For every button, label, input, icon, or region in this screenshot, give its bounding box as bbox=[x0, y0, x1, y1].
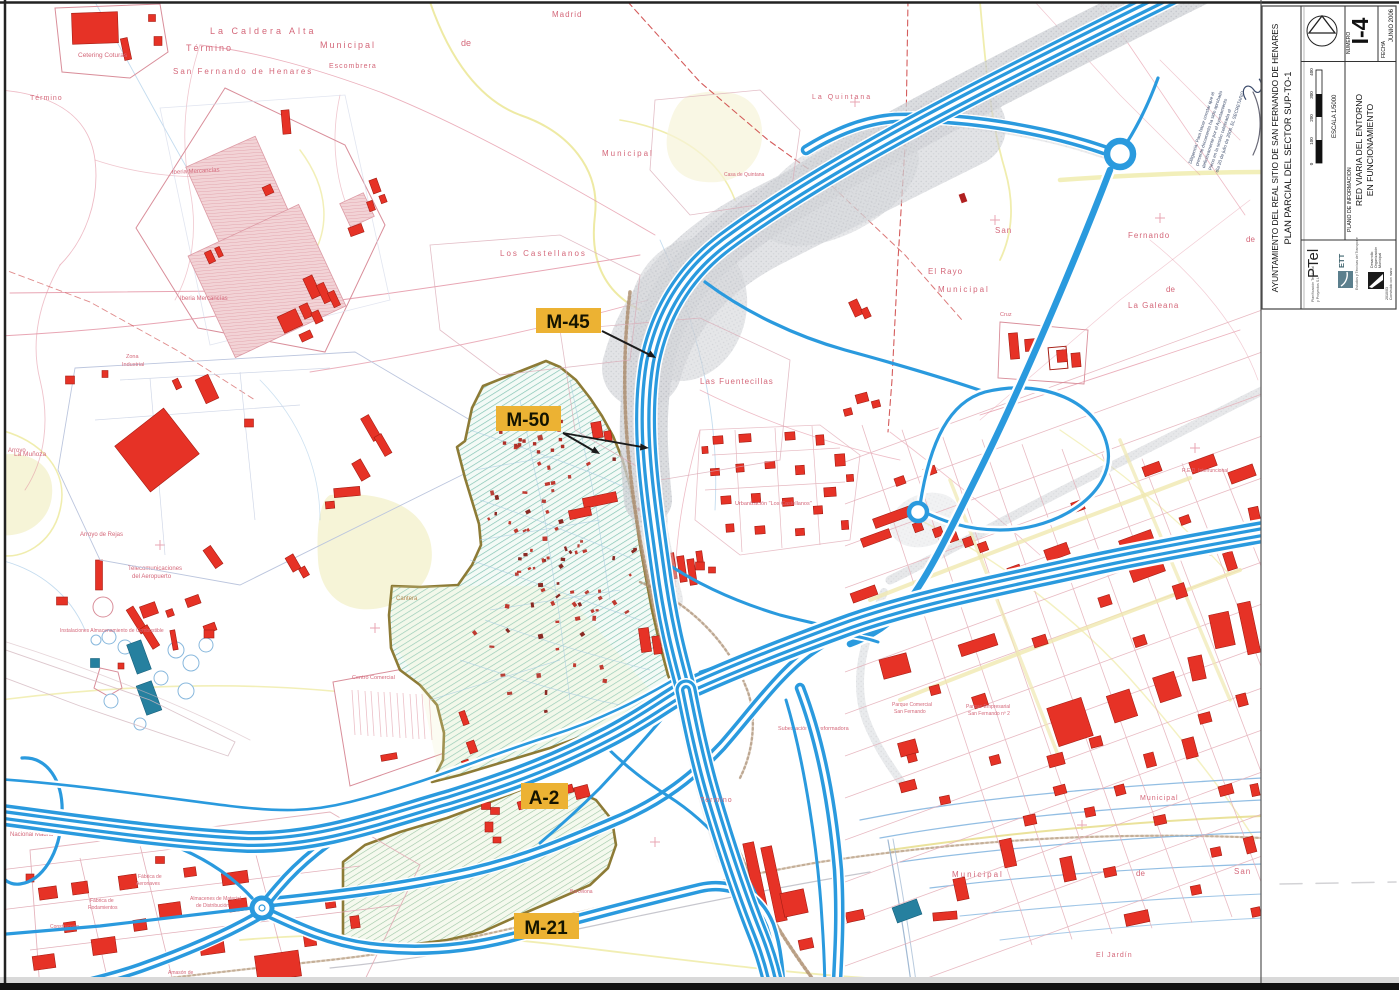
svg-text:Construido con mano: Construido con mano bbox=[1389, 268, 1393, 300]
svg-text:Arroyo de Rejas: Arroyo de Rejas bbox=[80, 532, 123, 538]
svg-text:Término: Término bbox=[30, 95, 63, 102]
svg-text:I-4: I-4 bbox=[1347, 17, 1373, 44]
svg-text:de: de bbox=[1136, 869, 1145, 878]
svg-text:Municipal: Municipal bbox=[320, 40, 376, 50]
svg-text:Zona: Zona bbox=[126, 354, 139, 360]
svg-text:M-50: M-50 bbox=[506, 410, 549, 431]
svg-text:La Caldera Alta: La Caldera Alta bbox=[210, 26, 317, 36]
svg-text:Planificación Territorial: Planificación Territorial bbox=[1311, 266, 1315, 302]
svg-text:ESCALA 1/5000: ESCALA 1/5000 bbox=[1332, 94, 1338, 138]
svg-text:San: San bbox=[995, 226, 1012, 235]
svg-text:400: 400 bbox=[1309, 68, 1314, 76]
svg-text:de: de bbox=[1246, 235, 1255, 244]
svg-text:FECHA: FECHA bbox=[1381, 40, 1387, 58]
svg-text:Parque Comercial: Parque Comercial bbox=[892, 702, 932, 708]
svg-text:Instalaciones Almacenamiento d: Instalaciones Almacenamiento de Combusti… bbox=[60, 628, 164, 634]
svg-text:Municipal: Municipal bbox=[1140, 795, 1179, 802]
svg-text:AYUNTAMIENTO DEL REAL SITIO DE: AYUNTAMIENTO DEL REAL SITIO DE SAN FERNA… bbox=[1270, 23, 1280, 292]
svg-text:R.E.D. Interfuncional: R.E.D. Interfuncional bbox=[1182, 468, 1228, 474]
svg-text:San Fernando de Henar: San Fernando de Henares bbox=[173, 67, 313, 76]
svg-text:100: 100 bbox=[1309, 137, 1314, 145]
svg-text:300: 300 bbox=[1309, 91, 1314, 99]
svg-text:Urbanización "Los Castellanos": Urbanización "Los Castellanos" bbox=[735, 501, 812, 507]
svg-text:El Jardín: El Jardín bbox=[1096, 952, 1133, 959]
svg-text:ETT: ETT bbox=[1337, 253, 1346, 268]
svg-text:Industrial: Industrial bbox=[122, 362, 144, 368]
svg-text:M-21: M-21 bbox=[524, 918, 568, 939]
svg-text:Barcelona: Barcelona bbox=[570, 889, 593, 895]
svg-text:Cetering Coturas: Cetering Coturas bbox=[78, 52, 128, 59]
svg-text:La Quintana: La Quintana bbox=[812, 94, 872, 101]
svg-text:del Aeropuerto: del Aeropuerto bbox=[132, 574, 172, 580]
svg-text:Fábrica de: Fábrica de bbox=[90, 898, 114, 904]
svg-text:de: de bbox=[1166, 285, 1175, 294]
svg-text:Las Fuentecillas: Las Fuentecillas bbox=[700, 377, 774, 386]
svg-text:San Fernando: San Fernando bbox=[894, 709, 926, 715]
svg-text:Estudios y Técnicas del Transp: Estudios y Técnicas del Transporte bbox=[1355, 237, 1359, 290]
svg-text:Municipal: Municipal bbox=[602, 149, 654, 158]
svg-text:Fernando: Fernando bbox=[1128, 231, 1170, 240]
svg-text:M-45: M-45 bbox=[546, 312, 590, 333]
svg-text:Rodamientos: Rodamientos bbox=[88, 905, 118, 911]
svg-text:Municipal: Municipal bbox=[938, 285, 990, 294]
svg-text:PLANO DE INFORMACION: PLANO DE INFORMACION bbox=[1347, 167, 1353, 232]
svg-text:El Rayo: El Rayo bbox=[928, 267, 963, 276]
svg-text:Municipal: Municipal bbox=[952, 870, 1004, 879]
svg-text:PLAN PARCIAL DEL SECTOR SUP-TO: PLAN PARCIAL DEL SECTOR SUP-TO-1 bbox=[1283, 72, 1293, 245]
svg-text:Parque Empresarial: Parque Empresarial bbox=[966, 704, 1010, 710]
svg-text:Municipal: Municipal bbox=[1378, 253, 1382, 268]
svg-text:A-2: A-2 bbox=[529, 788, 560, 809]
svg-text:Fábrica de: Fábrica de bbox=[138, 874, 162, 880]
svg-text:San: San bbox=[1234, 867, 1251, 876]
svg-text:Escombrera: Escombrera bbox=[329, 63, 377, 70]
svg-text:Término: Término bbox=[700, 797, 733, 804]
svg-text:y Proyectos S.L.: y Proyectos S.L. bbox=[1316, 276, 1320, 302]
svg-text:San Fernando nº 2: San Fernando nº 2 bbox=[968, 711, 1010, 717]
svg-text:Iberia Mercancías: Iberia Mercancías bbox=[180, 296, 228, 302]
svg-text:de: de bbox=[461, 38, 471, 48]
svg-text:EN FUNCIONAMIENTO: EN FUNCIONAMIENTO bbox=[1365, 103, 1375, 196]
svg-text:JUNIO 2006: JUNIO 2006 bbox=[1389, 8, 1395, 42]
svg-text:Arroyo: Arroyo bbox=[8, 448, 26, 454]
svg-text:Amasón de: Amasón de bbox=[168, 970, 194, 976]
svg-text:Centro Comercial: Centro Comercial bbox=[352, 675, 395, 681]
svg-text:Término: Término bbox=[186, 43, 233, 53]
svg-text:Madrid: Madrid bbox=[552, 10, 582, 19]
svg-text:200: 200 bbox=[1309, 114, 1314, 122]
svg-text:RED VIARIA DEL ENTORNO: RED VIARIA DEL ENTORNO bbox=[1354, 94, 1364, 207]
svg-text:Los Castellanos: Los Castellanos bbox=[500, 249, 587, 258]
svg-text:Cantera: Cantera bbox=[396, 596, 418, 602]
svg-text:de Distribución: de Distribución bbox=[196, 903, 229, 909]
svg-text:Aeronaves: Aeronaves bbox=[136, 881, 160, 887]
svg-text:Almacenes de Material: Almacenes de Material bbox=[190, 896, 241, 902]
svg-text:La Galeana: La Galeana bbox=[1128, 301, 1179, 310]
svg-text:Casa de Quintana: Casa de Quintana bbox=[724, 172, 765, 178]
svg-text:Cruz: Cruz bbox=[1000, 312, 1012, 318]
